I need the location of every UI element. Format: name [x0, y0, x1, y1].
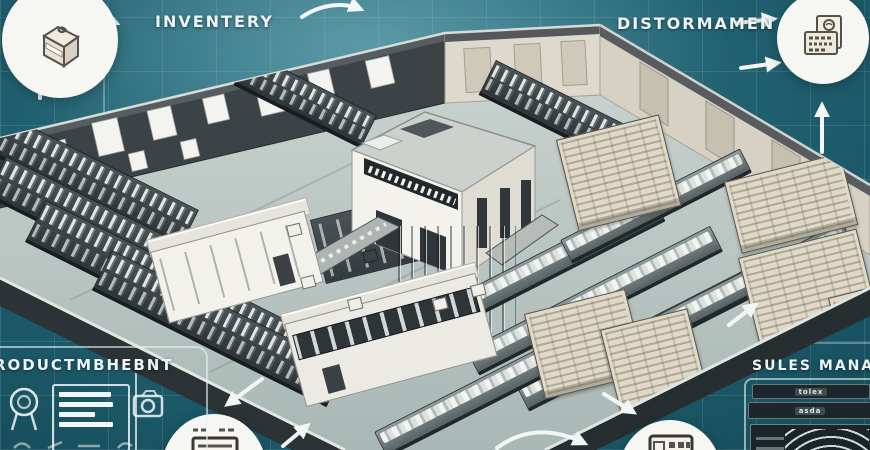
sales-chart-rows — [756, 430, 784, 450]
document-folder-icon — [795, 10, 851, 66]
badge-icon — [2, 384, 46, 442]
zone-label-distribution: DISTORMAMEN — [617, 14, 775, 33]
zone-label-product: RODUCTMBHEBNT — [0, 356, 174, 374]
cardboard-box-icon — [28, 8, 92, 72]
sales-row: tolex — [752, 384, 870, 399]
zone-label-inventory: INVENTERY — [155, 12, 274, 31]
camera-icon — [130, 386, 170, 422]
spiral-graphic — [785, 429, 869, 450]
tool-sketches — [8, 438, 158, 450]
sketch-bar — [59, 422, 113, 427]
sales-chart-card — [750, 424, 870, 450]
sketch-bar — [59, 412, 95, 417]
sales-row-text: tolex — [795, 388, 828, 396]
zone-label-sales: SULES MANAGE — [752, 358, 870, 374]
sales-row: asda — [748, 402, 870, 419]
sketch-bar — [59, 402, 113, 407]
warehouse-illustration: INVENTERY DISTORMAMEN — [0, 0, 870, 450]
id-card-icon — [640, 428, 700, 450]
sketch-bar — [59, 392, 111, 397]
sales-row-text: asda — [795, 407, 826, 415]
